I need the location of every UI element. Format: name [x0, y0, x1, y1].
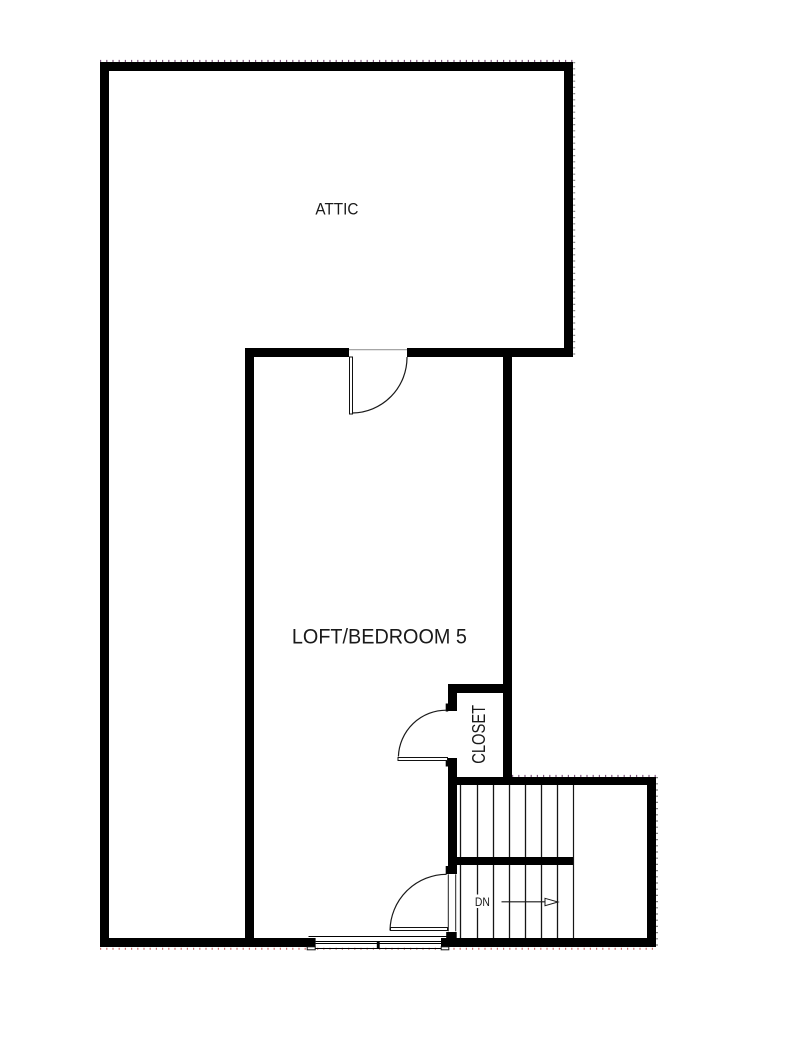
svg-text:ATTIC: ATTIC — [315, 200, 358, 219]
svg-text:CLOSET: CLOSET — [469, 705, 489, 764]
svg-text:LOFT/BEDROOM 5: LOFT/BEDROOM 5 — [292, 624, 467, 649]
svg-text:DN: DN — [475, 895, 490, 909]
